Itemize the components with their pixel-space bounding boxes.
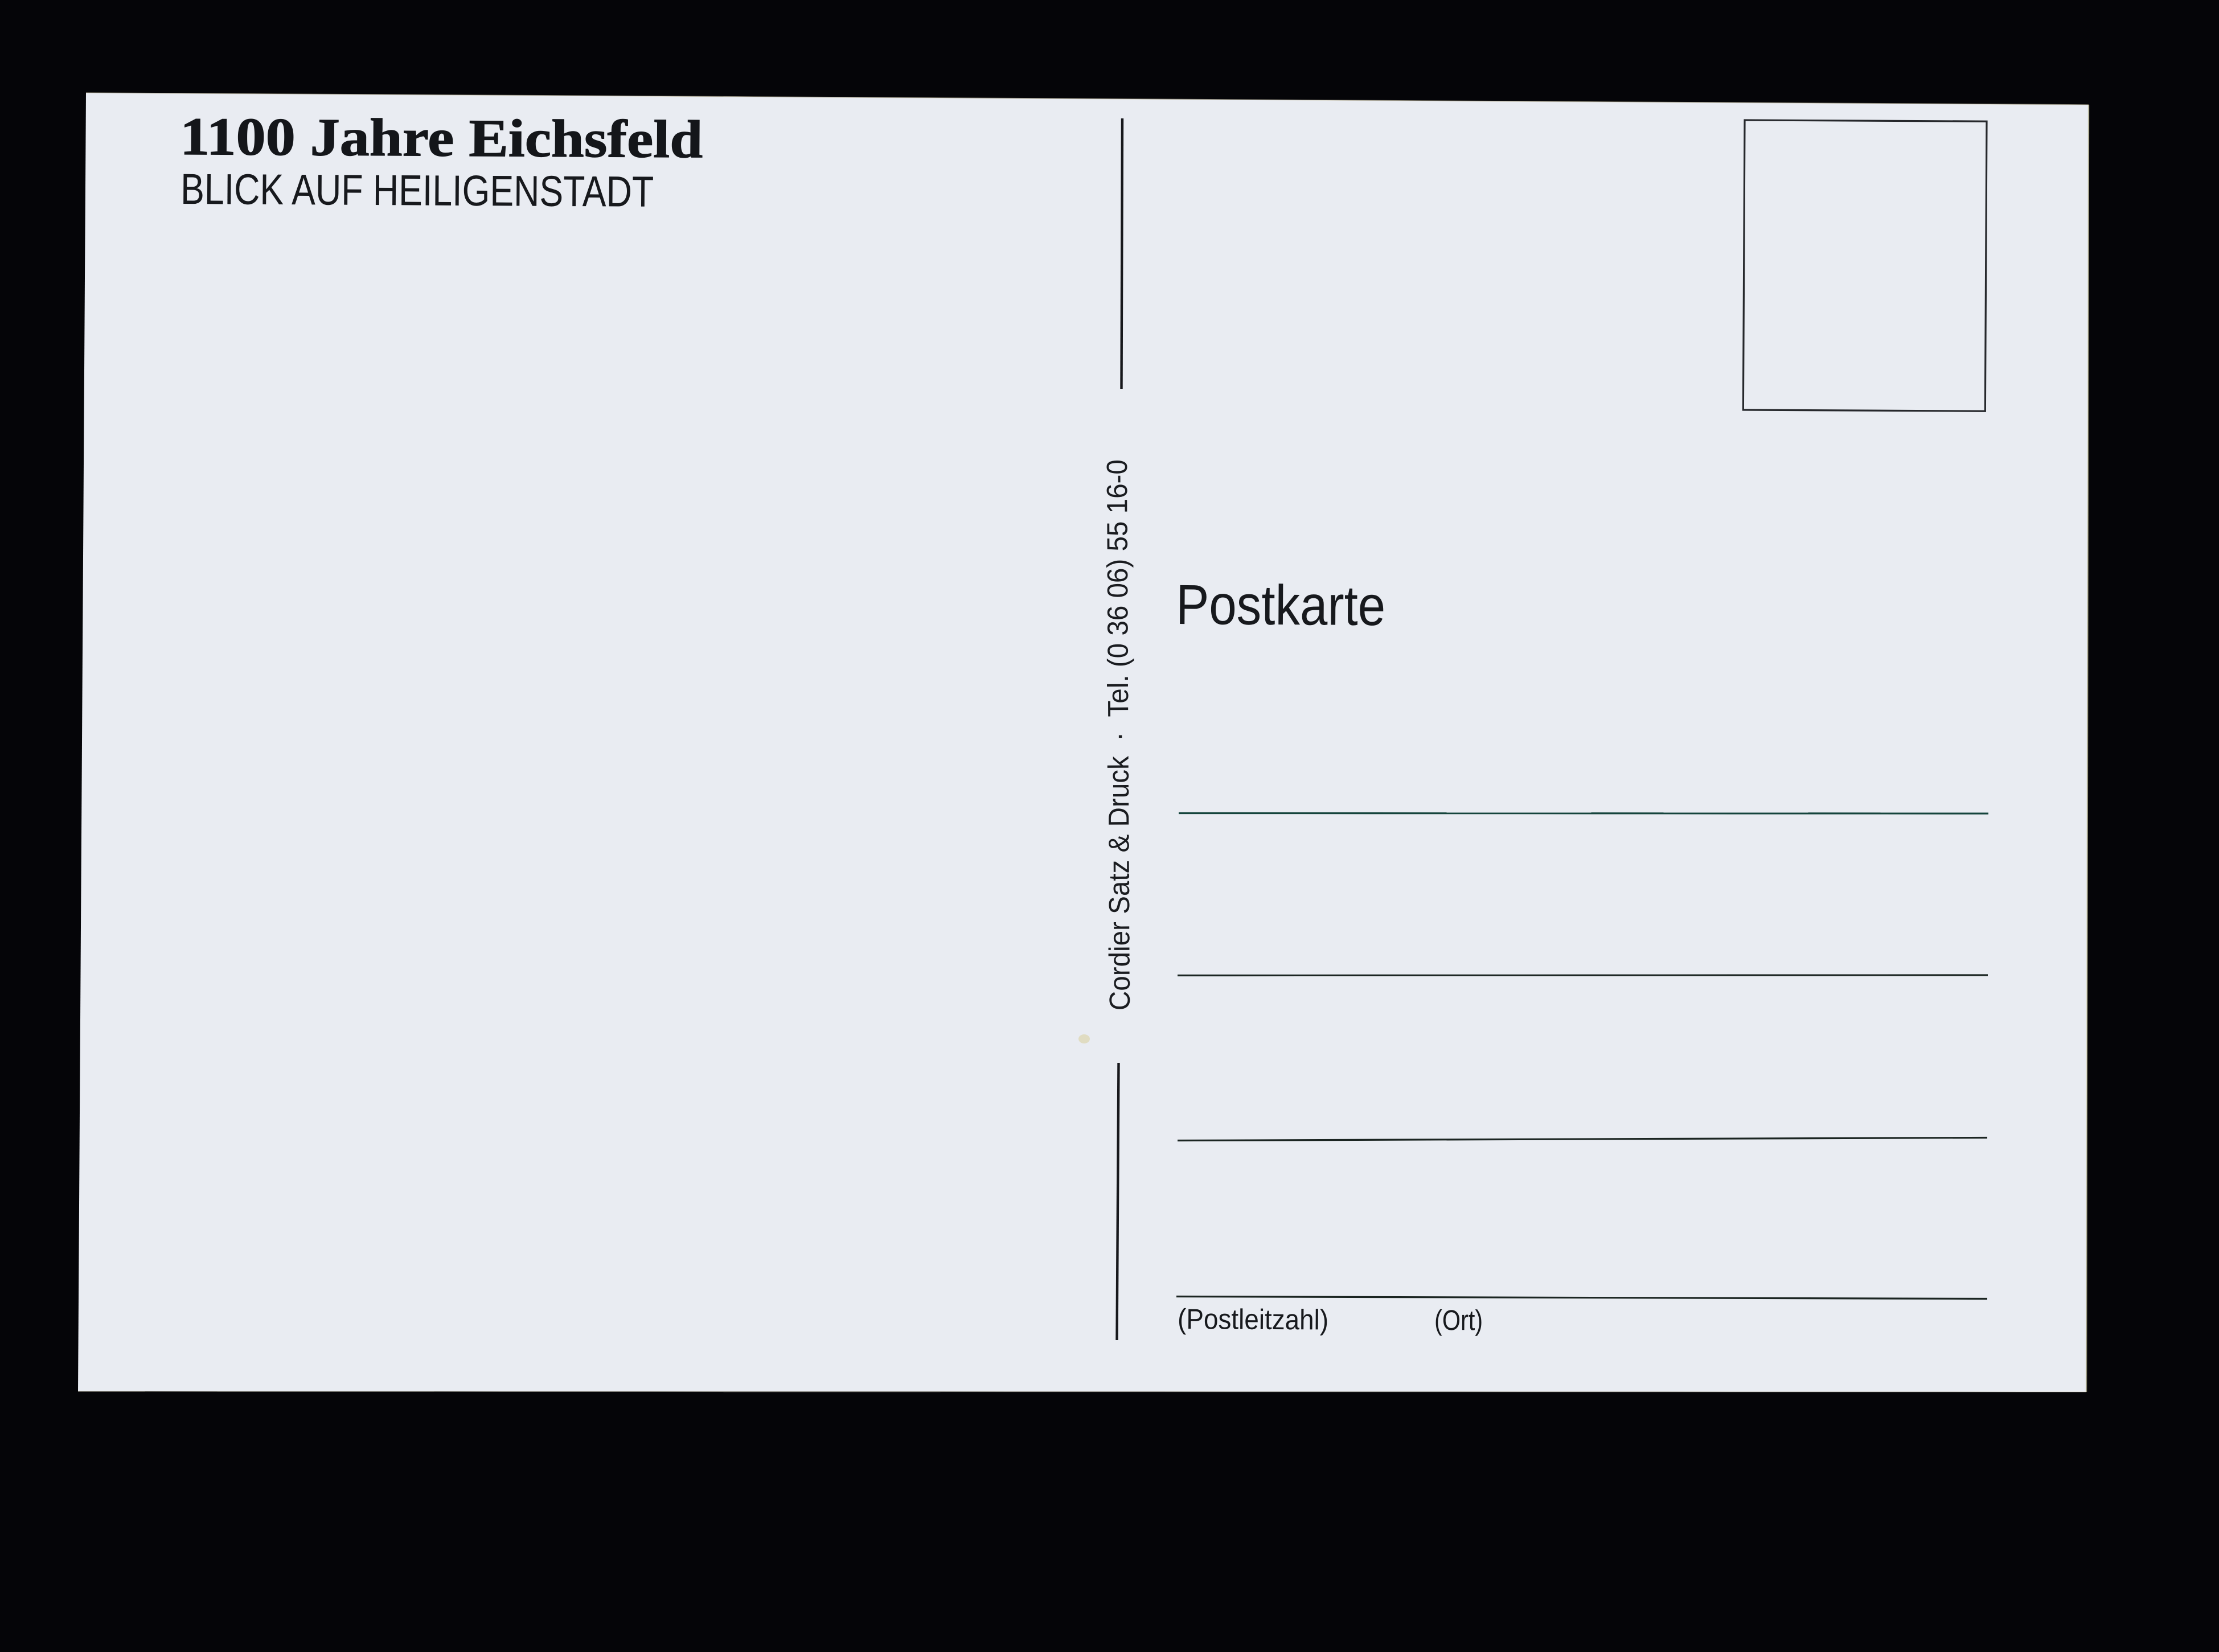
svg-text:Postkarte: Postkarte bbox=[1176, 573, 1386, 637]
svg-text:Cordier Satz & Druck · Tel.: Cordier Satz & Druck · Tel. (0 36 06) 55… bbox=[1101, 459, 1136, 1010]
svg-text:1100 Jahre Eichsfeld: 1100 Jahre Eichsfeld bbox=[180, 107, 703, 169]
svg-text:BLICK AUF HEILIGENSTADT: BLICK AUF HEILIGENSTADT bbox=[181, 165, 654, 216]
svg-text:(Ort): (Ort) bbox=[1434, 1304, 1483, 1337]
svg-text:(Postleitzahl): (Postleitzahl) bbox=[1178, 1303, 1328, 1336]
